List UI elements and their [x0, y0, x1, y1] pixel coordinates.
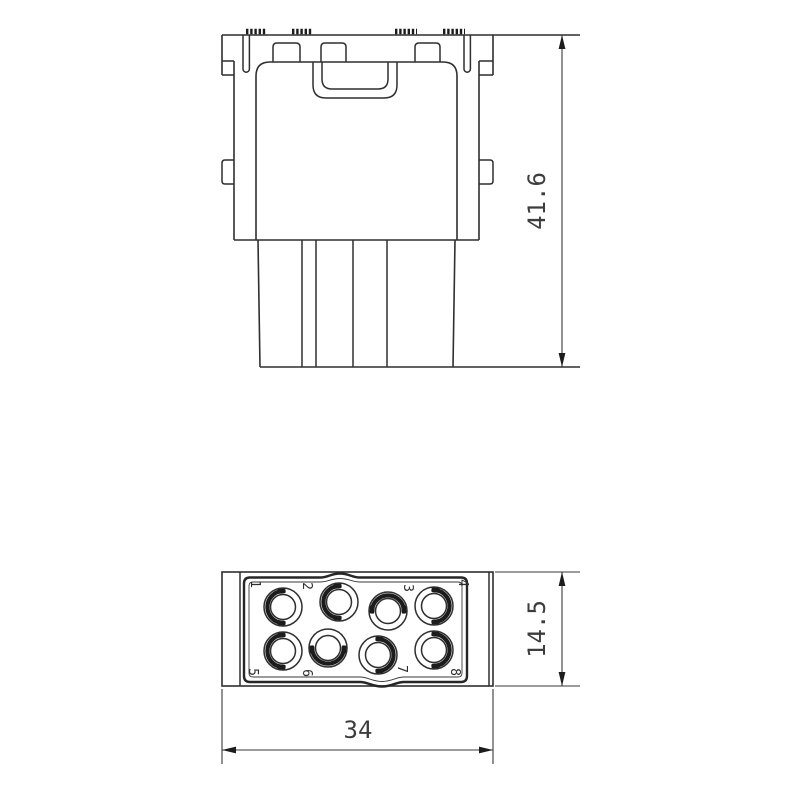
contact-number-6: 6: [299, 669, 314, 677]
arrowhead-down: [559, 353, 566, 367]
contact-1: [264, 588, 302, 626]
contact-number-4: 4: [455, 579, 470, 587]
height-dimension-14-5: 14.5: [495, 572, 580, 686]
side-tab-left: [222, 160, 234, 184]
contact-number-5: 5: [245, 668, 260, 676]
technical-drawing: 41.6 1 2 3 4 5 6 7 8: [0, 0, 800, 800]
dimension-label: 34: [344, 716, 373, 744]
arrowhead-up: [559, 572, 566, 586]
pin-partition-lines: [302, 240, 387, 367]
contact-7: [359, 636, 397, 674]
contact-number-8: 8: [447, 668, 462, 676]
arrowhead-up: [559, 35, 566, 49]
drawing-canvas: 41.6 1 2 3 4 5 6 7 8: [0, 0, 800, 800]
arrowhead-down: [559, 672, 566, 686]
right-slot: [464, 35, 470, 72]
contact-number-7: 7: [394, 665, 409, 673]
width-dimension-34: 34: [222, 689, 493, 764]
contact-3: [369, 592, 407, 630]
arrowhead-left: [222, 747, 236, 754]
contact-8: [415, 631, 453, 669]
arrowhead-right: [479, 747, 493, 754]
contact-number-2: 2: [299, 582, 314, 590]
latch-bumps: [273, 43, 440, 62]
handle-inner: [322, 62, 388, 89]
dimension-label: 41.6: [523, 172, 551, 230]
right-flange: [479, 35, 493, 240]
insert-block-sides: [258, 240, 455, 367]
contact-number-1: 1: [247, 580, 262, 588]
left-flange: [222, 35, 234, 240]
height-dimension-41-6: 41.6: [523, 35, 565, 367]
contact-4: [415, 587, 453, 625]
bottom-view: 1 2 3 4 5 6 7 8: [222, 572, 493, 687]
latch-bump: [415, 43, 440, 62]
latch-bump: [321, 43, 346, 62]
contact-2: [320, 583, 358, 621]
left-slot: [243, 35, 249, 72]
contact-6: [309, 629, 347, 667]
latch-bump: [273, 43, 300, 62]
dimension-label: 14.5: [523, 600, 551, 658]
contact-number-3: 3: [400, 584, 415, 592]
contact-5: [264, 632, 302, 670]
handle-outer: [313, 62, 397, 98]
side-tab-right: [479, 160, 493, 184]
